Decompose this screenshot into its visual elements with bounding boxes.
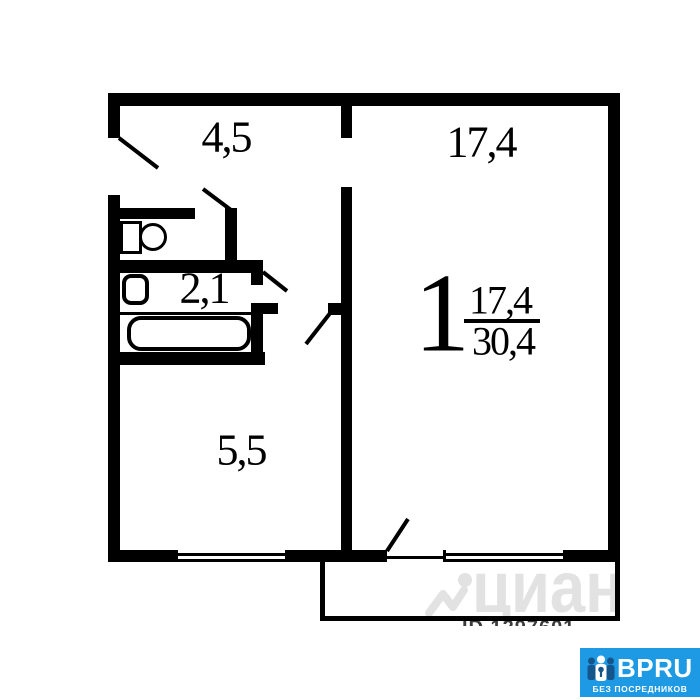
living-room-area-label: 17,4 <box>447 117 516 168</box>
total-area-value: 30,4 <box>472 318 534 365</box>
kitchen-area-label: 5,5 <box>217 425 266 476</box>
bpru-logo-tagline: БЕЗ ПОСРЕДНИКОВ <box>586 684 694 694</box>
door-swing-bathroom <box>263 272 287 291</box>
door-swing-entrance <box>119 138 158 168</box>
living-area-value: 17,4 <box>469 277 531 324</box>
bpru-people-key-icon <box>586 654 616 684</box>
rooms-count-label: 1 <box>414 250 470 379</box>
bathroom-area-label: 2,1 <box>180 263 229 314</box>
bpru-logo-text: BPRU <box>617 655 693 681</box>
door-swing-balcony <box>387 519 408 551</box>
door-swings <box>0 0 700 700</box>
door-swing-toilet <box>203 189 231 210</box>
floor-plan: циан ID 1297601 4,5 17,4 2, <box>0 0 700 700</box>
door-swing-kitchen <box>306 312 331 344</box>
bpru-logo-badge: BPRU БЕЗ ПОСРЕДНИКОВ <box>580 648 700 697</box>
hallway-area-label: 4,5 <box>202 112 251 163</box>
